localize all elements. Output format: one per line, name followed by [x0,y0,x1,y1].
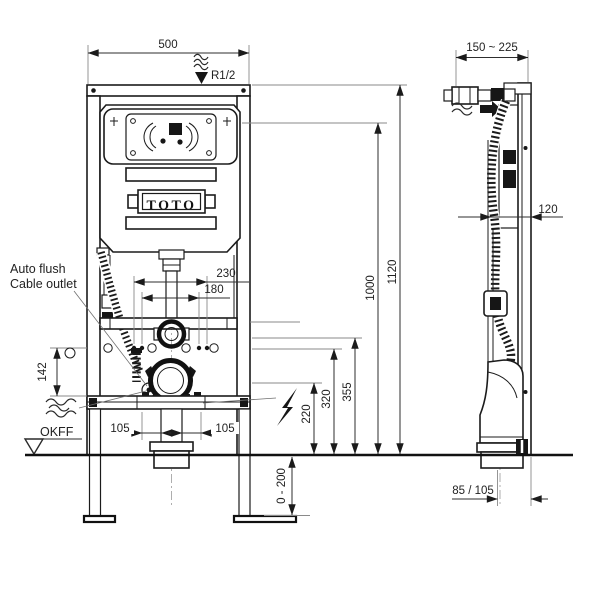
dim-142: 142 [37,362,49,381]
drain-coupling-rim [150,442,193,451]
brand-logo: TOTO [147,199,197,214]
dim-105-right: 105 [215,423,234,435]
rail-hole [148,344,156,352]
rail-hole [104,344,112,352]
dim-cistern-height: 1000 [365,275,377,301]
dim-220: 220 [301,404,313,423]
flush-pipe-collar [159,250,184,259]
rail-screw [524,390,528,394]
logo-tab-right [205,195,215,208]
bracket-plate [126,114,216,160]
screw-top-left [91,88,96,93]
rail-anchor-right [240,398,248,407]
side-plate-block [503,150,516,164]
valve-connector [491,88,504,101]
rail-anchor-left [89,398,97,407]
drain-elbow [480,360,523,443]
floor-marker-label: OKFF [40,425,74,439]
supply-thread-label: R1/2 [211,70,235,82]
drain-pipe [161,409,182,442]
tank-slat-upper [126,168,216,181]
screw-top-right [241,88,246,93]
dim-105-left: 105 [110,423,129,435]
level-marker-icon [25,439,43,454]
right-foot [234,516,296,522]
plate-hole [177,139,182,144]
logo-tab-left [128,195,138,208]
spring-cap [131,348,142,353]
dim-355: 355 [342,382,354,401]
dim-depth: 120 [538,204,557,216]
rail-screw [524,146,528,150]
cable-outlet-label: Cable outlet [10,277,77,291]
fixing-bolt [197,346,201,350]
technical-drawing-page: TOTO [0,0,600,600]
stop-valve [452,87,478,104]
valve-cap [444,90,452,101]
flush-actuator-port [169,123,182,135]
valve-nut [504,89,515,101]
valve-stem [478,90,491,101]
toilet-carrier-frame-drawing: TOTO [0,0,600,600]
tank-slat-lower [126,217,216,229]
dim-320: 320 [321,389,333,408]
side-view [444,83,531,506]
dim-depth-range: 150 ~ 225 [466,42,517,54]
plate-hole [160,138,165,143]
fixing-bolt [205,346,209,350]
rail-hole [210,344,218,352]
dim-180: 180 [204,284,223,296]
dim-230: 230 [216,268,235,280]
dim-drain-offset: 85 / 105 [452,485,494,497]
dim-frame-height: 1120 [387,260,399,285]
rail-hole [182,344,190,352]
drain-coupling [154,451,189,468]
side-plate-block [503,170,516,188]
lightning-bolt-icon [277,388,297,426]
dim-leg-range: 0 - 200 [276,468,288,504]
outlet-hole [65,348,75,358]
left-foot [84,516,115,522]
auto-flush-label: Auto flush [10,262,66,276]
right-leg [239,409,250,516]
hose-clamp-block [490,297,501,310]
front-view: TOTO [84,85,296,522]
left-leg [90,409,101,516]
dim-width: 500 [158,39,177,51]
frame-top-rail [87,85,250,96]
flush-pipe [166,271,177,322]
supply-arrow-icon [195,72,208,84]
